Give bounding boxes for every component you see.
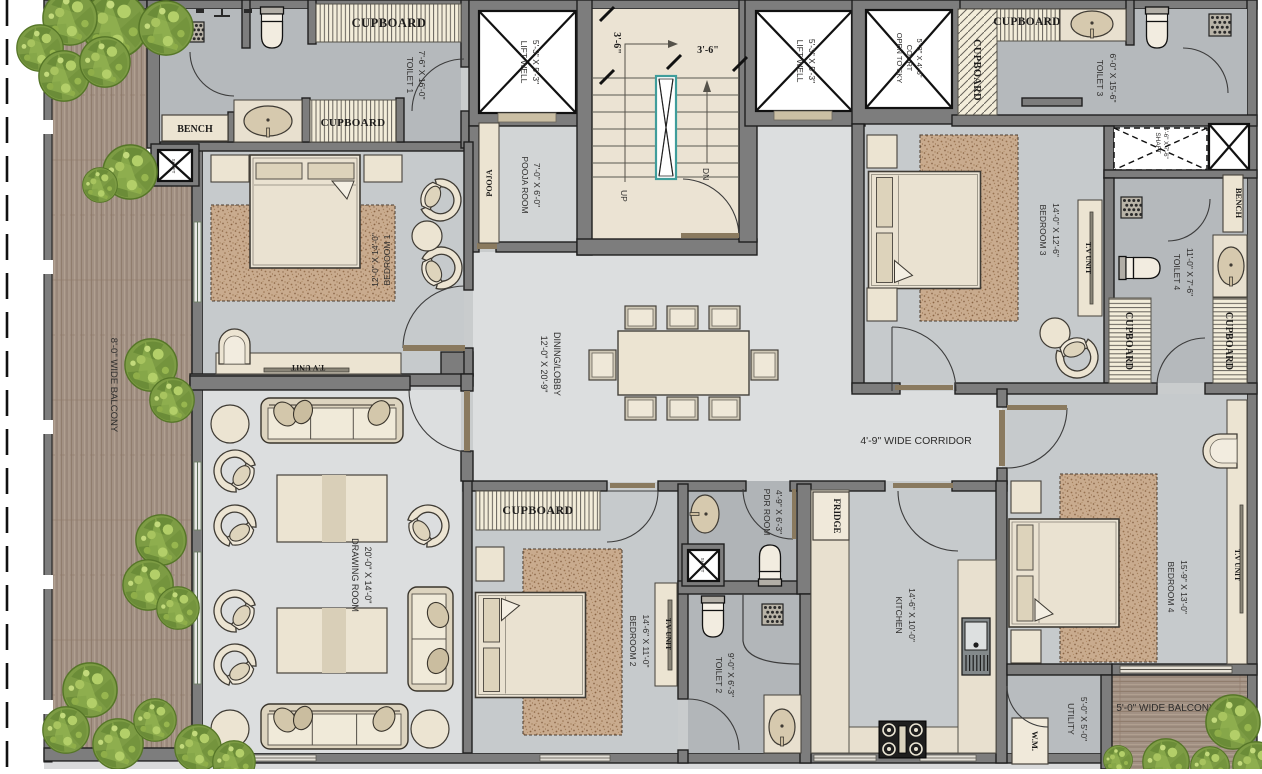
svg-text:5'-0" WIDE BALCONY: 5'-0" WIDE BALCONY: [1116, 703, 1216, 714]
svg-text:UP: UP: [619, 190, 629, 202]
svg-text:UTILITY: UTILITY: [1066, 703, 1076, 735]
svg-text:20'-0" X 14'-0": 20'-0" X 14'-0": [363, 547, 373, 604]
svg-text:PDR ROOM: PDR ROOM: [762, 489, 772, 536]
svg-text:T.V UNIT: T.V UNIT: [290, 363, 325, 372]
svg-text:T.V UNIT: T.V UNIT: [664, 618, 673, 650]
svg-text:3'-6": 3'-6": [697, 45, 719, 56]
svg-text:COURT: COURT: [905, 45, 914, 72]
svg-text:CUPBOARD: CUPBOARD: [1223, 312, 1234, 370]
svg-text:4'-9" X 6'-3": 4'-9" X 6'-3": [774, 490, 784, 534]
svg-text:DN: DN: [701, 168, 711, 180]
svg-text:15'-9" X 13'-0": 15'-9" X 13'-0": [1179, 560, 1189, 614]
svg-text:TOILET 2: TOILET 2: [714, 657, 724, 694]
svg-text:TOILET 4: TOILET 4: [1172, 254, 1182, 291]
svg-text:7'-6" X 16'-0": 7'-6" X 16'-0": [417, 51, 427, 100]
svg-text:TOILET 3: TOILET 3: [1095, 60, 1105, 97]
svg-text:14'-6" X 10'-0": 14'-6" X 10'-0": [907, 588, 917, 642]
svg-text:7'-0" X 6'-0": 7'-0" X 6'-0": [532, 163, 542, 207]
svg-text:8'-0" WIDE BALCONY: 8'-0" WIDE BALCONY: [108, 338, 119, 433]
svg-text:OPEN TO SKY: OPEN TO SKY: [895, 33, 904, 84]
svg-text:CUPBOARD: CUPBOARD: [1123, 312, 1134, 370]
svg-text:CUPBOARD: CUPBOARD: [971, 39, 982, 101]
svg-text:T.V UNIT: T.V UNIT: [1084, 242, 1093, 274]
svg-text:DINING/LOBBY: DINING/LOBBY: [552, 332, 562, 396]
svg-text:CUPBOARD: CUPBOARD: [352, 16, 427, 30]
svg-text:CUPBOARD: CUPBOARD: [321, 117, 386, 129]
svg-text:12'-0" X 14'-0": 12'-0" X 14'-0": [370, 233, 380, 287]
svg-text:CUPBOARD: CUPBOARD: [993, 16, 1061, 28]
svg-text:FRIDGE: FRIDGE: [832, 498, 842, 533]
svg-text:6'-0" X 15'-6": 6'-0" X 15'-6": [1108, 54, 1118, 103]
svg-text:TOILET 1: TOILET 1: [405, 57, 415, 94]
svg-text:KITCHEN: KITCHEN: [894, 596, 904, 633]
svg-text:BEDROOM 1: BEDROOM 1: [382, 234, 392, 285]
svg-text:14'-6" X 11'-0": 14'-6" X 11'-0": [641, 614, 651, 667]
svg-text:T.V UNIT: T.V UNIT: [1233, 549, 1242, 581]
svg-text:5'-3" X 5'-3": 5'-3" X 5'-3": [807, 39, 817, 83]
svg-text:3'-6": 3'-6": [611, 32, 622, 54]
svg-text:W.M.: W.M.: [1030, 731, 1040, 751]
svg-text:SHAFT: SHAFT: [171, 159, 176, 174]
svg-text:BENCH: BENCH: [1234, 188, 1244, 219]
svg-text:POOJA: POOJA: [485, 169, 494, 196]
svg-text:BEDROOM 4: BEDROOM 4: [1166, 561, 1176, 612]
svg-text:BENCH: BENCH: [177, 124, 213, 135]
svg-text:14'-0" X 12'-6": 14'-0" X 12'-6": [1051, 203, 1061, 257]
svg-text:POOJA ROOM: POOJA ROOM: [520, 156, 530, 213]
svg-text:DRAWING ROOM: DRAWING ROOM: [350, 538, 360, 612]
svg-text:SHAFT: SHAFT: [1154, 132, 1161, 153]
svg-text:LIFT WELL: LIFT WELL: [519, 41, 529, 84]
svg-text:4'-9" WIDE CORRIDOR: 4'-9" WIDE CORRIDOR: [860, 435, 972, 447]
svg-text:5'-3" X 4'-6": 5'-3" X 4'-6": [915, 38, 924, 77]
svg-text:12'-0" X 20'-9": 12'-0" X 20'-9": [539, 336, 549, 393]
svg-text:BEDROOM 3: BEDROOM 3: [1038, 204, 1048, 255]
svg-text:BEDROOM 2: BEDROOM 2: [628, 615, 638, 666]
svg-text:CUPBOARD: CUPBOARD: [502, 503, 573, 517]
svg-text:4'-6" X 7'-6": 4'-6" X 7'-6": [1162, 127, 1168, 158]
svg-text:5'-0" X 5'-0": 5'-0" X 5'-0": [1079, 697, 1089, 741]
svg-text:SHAFT: SHAFT: [700, 558, 705, 573]
svg-text:5'-3" X 5'-3": 5'-3" X 5'-3": [531, 40, 541, 84]
svg-text:11'-0" X 7'-6": 11'-0" X 7'-6": [1185, 248, 1195, 296]
svg-text:LIFT WELL: LIFT WELL: [795, 40, 805, 83]
svg-text:9'-0" X 6'-3": 9'-0" X 6'-3": [726, 653, 736, 697]
